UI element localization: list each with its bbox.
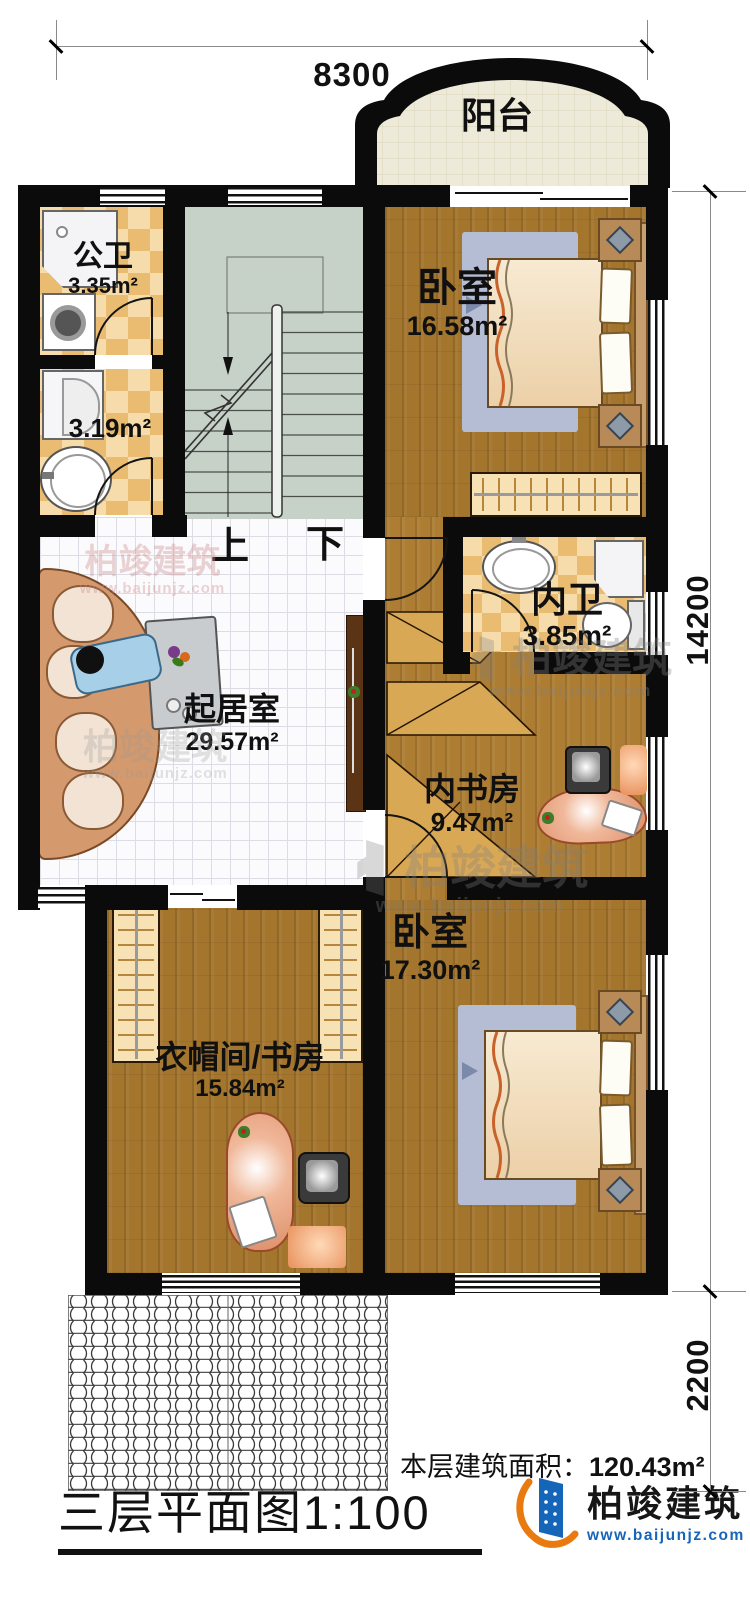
- dim-width-top: 8300: [272, 56, 432, 94]
- window: [38, 887, 85, 908]
- monitor-screen: [572, 752, 600, 782]
- pillow: [599, 1039, 633, 1096]
- sliding-door: [168, 887, 237, 908]
- wall: [18, 515, 95, 537]
- sliding-door-leaf: [455, 192, 543, 194]
- brand-logo-icon: [515, 1472, 579, 1548]
- pillow: [599, 267, 633, 324]
- wall: [534, 652, 646, 674]
- sofa-cushion: [52, 585, 114, 643]
- room-label-cloakroom: 衣帽间/书房 15.84m²: [120, 1040, 360, 1103]
- plan-title: 三层平面图1:100: [58, 1474, 518, 1543]
- up-text: 上: [211, 526, 249, 568]
- room-area: 3.19m²: [69, 413, 151, 443]
- side-table: [288, 1226, 346, 1268]
- wall: [646, 655, 668, 737]
- wall: [163, 185, 185, 537]
- room-label-inner-study: 内书房 9.47m²: [392, 772, 552, 837]
- washbasin-tap: [42, 472, 54, 479]
- plan-title-text: 三层平面图1:100: [58, 1486, 431, 1539]
- wall: [646, 1090, 668, 1295]
- nightstand: [598, 404, 642, 448]
- nightstand: [598, 1168, 642, 1212]
- dim-value: 8300: [313, 56, 390, 93]
- room-label-living: 起居室 29.57m²: [152, 692, 312, 756]
- room-label-public-bath: 公卫 3.35m²: [43, 240, 163, 298]
- window: [162, 1275, 300, 1293]
- washbasin-inner: [50, 454, 106, 508]
- room-name: 内书房: [424, 771, 520, 807]
- desk-plant: [238, 1126, 250, 1138]
- sliding-door-leaf: [202, 899, 235, 901]
- rod: [135, 909, 138, 1059]
- bed-blanket-stripes: [489, 1032, 515, 1178]
- pillow: [599, 1103, 633, 1166]
- nightstand-decor: [606, 1176, 634, 1204]
- cabinet-handle: [352, 648, 354, 773]
- wall: [300, 1273, 455, 1295]
- dim-line-right: [710, 192, 711, 1492]
- room-name: 卧室: [417, 266, 497, 310]
- wall: [152, 515, 187, 537]
- window: [648, 300, 666, 445]
- wall: [152, 355, 165, 369]
- wall: [85, 905, 107, 1295]
- room-name: 公卫: [73, 240, 133, 273]
- nightstand: [598, 990, 642, 1034]
- wall: [646, 445, 668, 592]
- nightstand-decor: [606, 412, 634, 440]
- rod: [474, 493, 638, 496]
- wall: [355, 185, 450, 207]
- brand-name: 柏竣建筑: [587, 1475, 745, 1527]
- sliding-door: [450, 186, 630, 206]
- wall: [630, 185, 668, 207]
- room-label-balcony: 阳台: [417, 96, 577, 136]
- wall: [237, 885, 363, 910]
- rug-arrow-decor: [462, 1062, 478, 1080]
- person-head: [76, 646, 104, 674]
- wall: [18, 355, 95, 369]
- potted-plant: [348, 686, 360, 698]
- room-area: 3.85m²: [487, 620, 647, 651]
- floor-plan-canvas: 阳台 公卫 3.35m² 3.19m² 卧室 16.58m² 内卫 3.85m²…: [0, 0, 750, 1620]
- side-stool: [620, 745, 647, 795]
- sofa-cushion: [62, 772, 124, 830]
- sliding-door-leaf: [170, 893, 203, 895]
- stairs-down-label: 下: [295, 524, 355, 567]
- sliding-door-leaf: [540, 198, 628, 200]
- wall: [363, 185, 385, 538]
- window: [648, 737, 666, 830]
- dim-height-right: 14200: [680, 540, 720, 700]
- nightstand: [598, 218, 642, 262]
- room-name: 衣帽间/书房: [156, 1039, 325, 1075]
- nightstand-decor: [606, 998, 634, 1026]
- room-area: 9.47m²: [392, 808, 552, 837]
- brand-text-block: 柏竣建筑 www.baijunjz.com: [587, 1475, 745, 1545]
- wall: [447, 877, 646, 900]
- wall: [85, 1273, 162, 1295]
- washing-machine-door: [50, 305, 86, 341]
- wall: [443, 517, 646, 537]
- dim-line-top: [56, 46, 648, 47]
- room-name: 阳台: [461, 95, 533, 136]
- title-underline: [58, 1549, 482, 1555]
- stairs-up-label: 上: [200, 526, 260, 569]
- room-label-bedroom-top: 卧室 16.58m²: [377, 266, 537, 341]
- room-label-bedroom-bottom: 卧室 17.30m²: [350, 912, 510, 985]
- nightstand-decor: [606, 226, 634, 254]
- monitor-screen: [306, 1160, 338, 1192]
- dim-height-lower-right: 2200: [680, 1305, 720, 1445]
- room-label-small-bath: 3.19m²: [50, 414, 170, 443]
- roof-tiles: [68, 1295, 388, 1491]
- room-area: 15.84m²: [120, 1076, 360, 1103]
- room-name: 卧室: [392, 912, 468, 954]
- room-name: 内卫: [531, 579, 603, 620]
- room-area: 16.58m²: [377, 311, 537, 341]
- window: [455, 1275, 600, 1293]
- shower-drain: [56, 226, 68, 238]
- dim-value: 14200: [680, 574, 715, 665]
- staircase: [185, 207, 363, 519]
- window: [648, 955, 666, 1090]
- down-text: 下: [306, 524, 344, 566]
- wall: [646, 830, 668, 955]
- wall: [363, 600, 385, 810]
- wall: [443, 517, 463, 674]
- pillow: [599, 331, 633, 394]
- sofa-cushion: [55, 712, 117, 772]
- closet-hanger-rod: [470, 472, 642, 517]
- room-area: 17.30m²: [350, 955, 510, 985]
- brand-url: www.baijunjz.com: [587, 1527, 745, 1545]
- room-label-inner-bath: 内卫 3.85m²: [487, 580, 647, 652]
- wall: [18, 185, 40, 910]
- room-area: 3.35m²: [43, 274, 163, 299]
- window: [648, 592, 666, 655]
- wall: [18, 885, 38, 910]
- window: [228, 187, 322, 205]
- room-area: 29.57m²: [152, 728, 312, 756]
- wall: [443, 652, 470, 674]
- rod: [340, 909, 343, 1059]
- dim-value: 2200: [680, 1339, 715, 1412]
- window: [100, 187, 165, 205]
- room-name: 起居室: [184, 691, 280, 727]
- flower-vase: [168, 646, 180, 658]
